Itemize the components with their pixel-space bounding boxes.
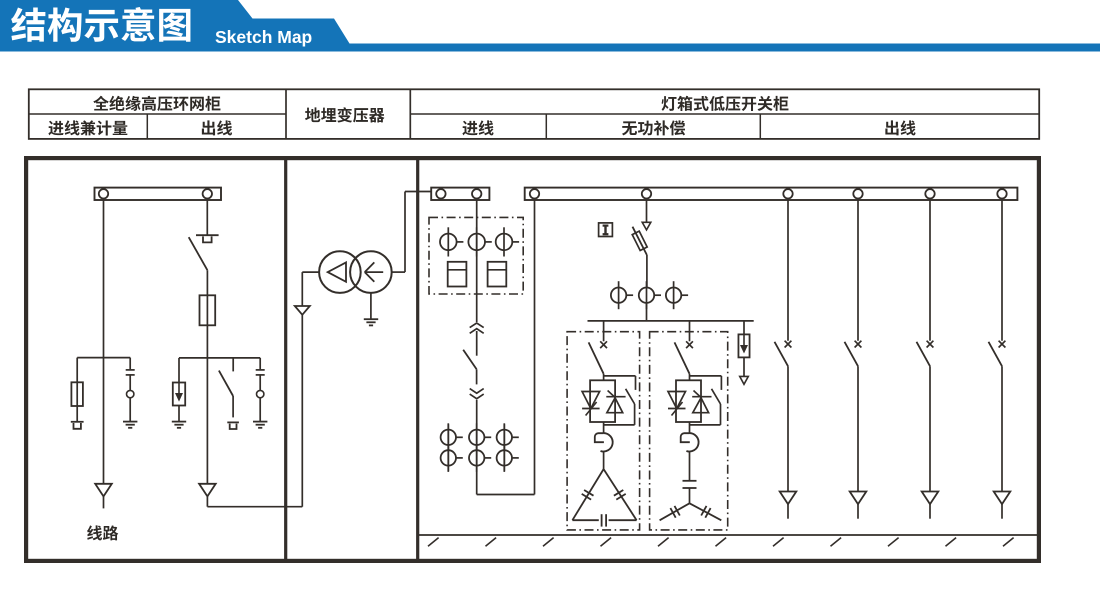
svg-text:Sketch Map: Sketch Map <box>215 27 312 47</box>
